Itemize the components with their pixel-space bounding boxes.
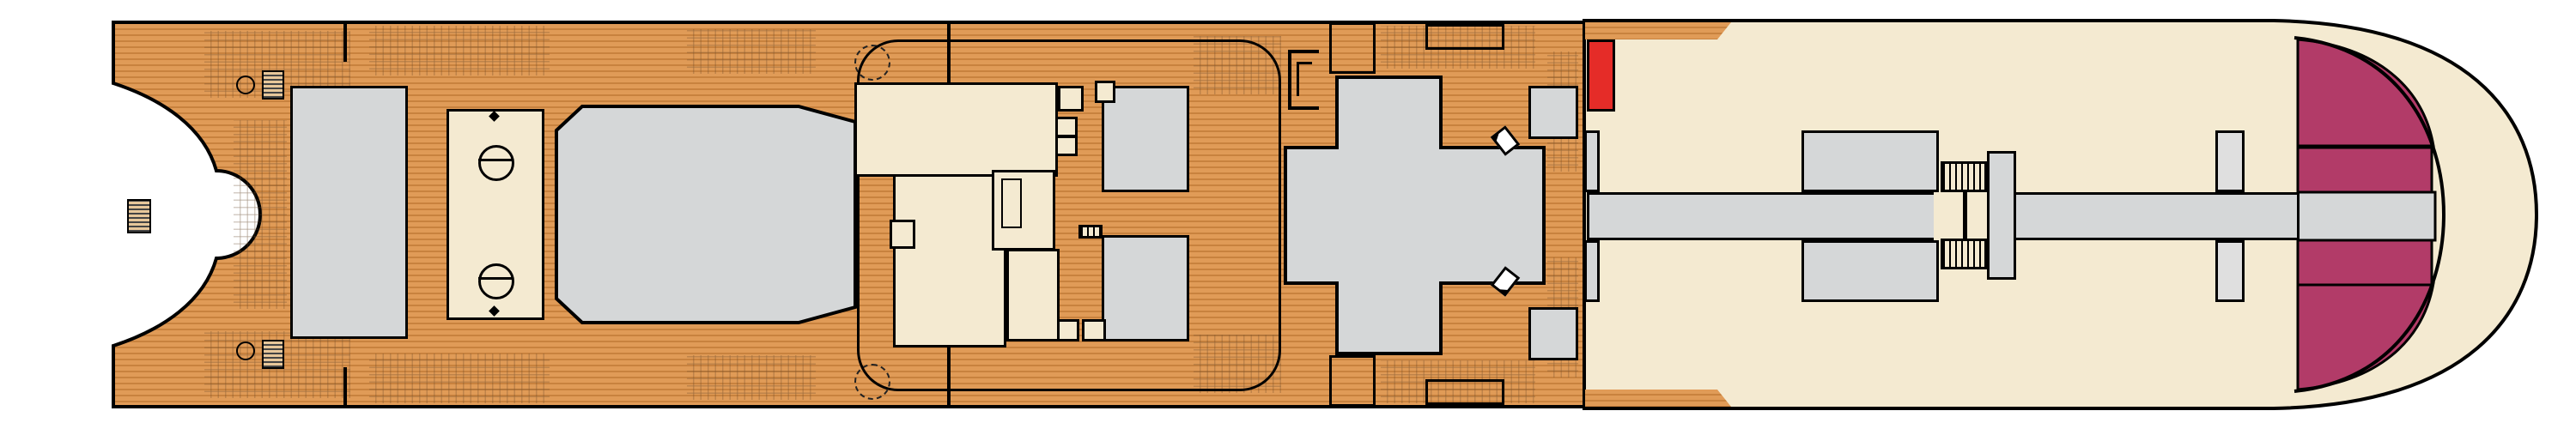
windbreak (343, 22, 347, 62)
structure-block (1528, 86, 1578, 139)
deck-furniture (687, 29, 816, 74)
court-circle (478, 263, 514, 299)
camp-ocean-label (945, 144, 963, 256)
elevator-lobby (1801, 240, 1939, 302)
windbreak (343, 367, 347, 407)
deck-structure-outline (1425, 24, 1504, 50)
deck-vent (127, 199, 151, 233)
utility-space (1584, 130, 1600, 192)
deck-furniture (369, 26, 550, 76)
slide-mark-m (1055, 117, 1078, 137)
court-line (478, 277, 513, 280)
structure-block (1528, 307, 1578, 360)
deck-circle (236, 341, 255, 360)
deck-vent (262, 340, 284, 369)
stair-lobby (1934, 190, 1989, 242)
cabin-11202-label[interactable] (2298, 149, 2427, 190)
deck-structure-outline (1329, 355, 1376, 407)
deck-plan (0, 0, 2576, 429)
slide-mark-u (1082, 319, 1106, 341)
cabin-11203-label[interactable] (2310, 290, 2339, 376)
camp-stage (1001, 178, 1022, 228)
utility-space (2215, 240, 2245, 302)
stairs (1941, 239, 1987, 269)
deck-structure-outline (1425, 379, 1504, 405)
dr-seuss-label (1022, 254, 1048, 338)
court-circle (478, 145, 514, 181)
deck-furniture (687, 355, 816, 400)
ladder-icon (1078, 225, 1103, 239)
deck-circle (236, 76, 255, 94)
deck-structure-outline (1329, 22, 1376, 74)
pergola-structure (1297, 62, 1312, 96)
sports-court-label (453, 146, 471, 292)
stair-link (1963, 192, 1967, 239)
cabin-11201-label[interactable] (2298, 242, 2427, 283)
slide-platform (1102, 235, 1189, 341)
slide-mark-u (1058, 86, 1084, 112)
cabin-11288[interactable] (1587, 39, 1615, 112)
cabin-11204-label[interactable] (2310, 53, 2339, 139)
deck-furniture (369, 353, 550, 403)
slide-mark-l (1057, 319, 1079, 341)
utility-space (2215, 130, 2245, 192)
slide-mark-m (1095, 81, 1115, 103)
slide-mark-u (890, 220, 915, 249)
court-line (478, 159, 513, 161)
deck-vent (262, 70, 284, 100)
deck-furniture (234, 120, 287, 309)
structure-block (290, 86, 408, 339)
stairs (1941, 161, 1987, 192)
deck-strip (1585, 390, 1731, 407)
slide-mark-l (1055, 136, 1078, 156)
utility-space (1584, 240, 1600, 302)
corridor-cross (1987, 151, 2016, 280)
deck-strip (1585, 22, 1731, 39)
theatre-label (1453, 156, 1491, 278)
elevator-lobby (1801, 130, 1939, 192)
